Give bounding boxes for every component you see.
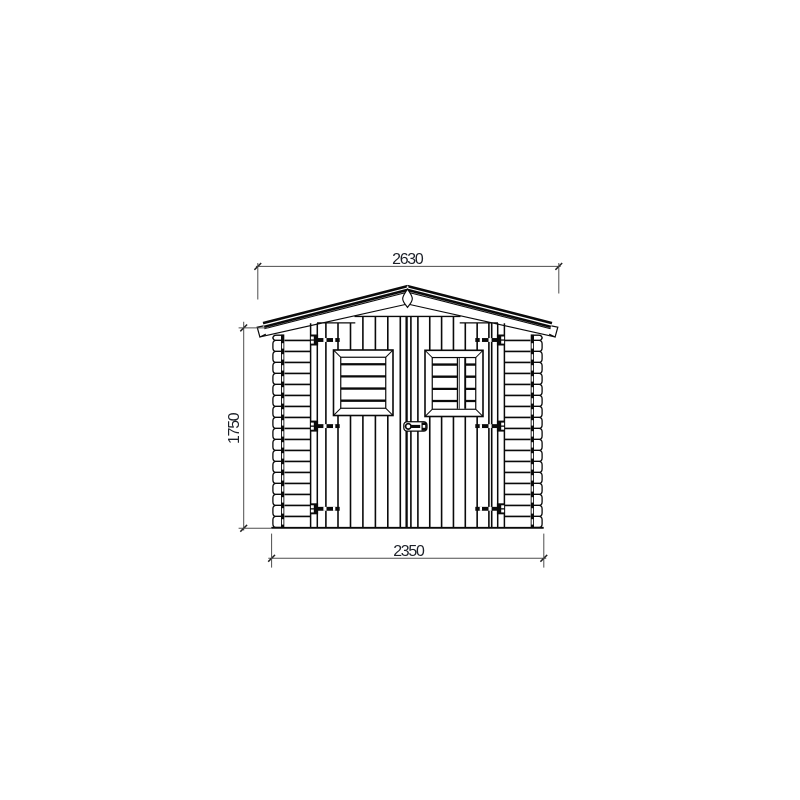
svg-text:2350: 2350 xyxy=(393,543,425,560)
svg-text:1750: 1750 xyxy=(226,412,243,444)
svg-text:2630: 2630 xyxy=(392,251,424,268)
